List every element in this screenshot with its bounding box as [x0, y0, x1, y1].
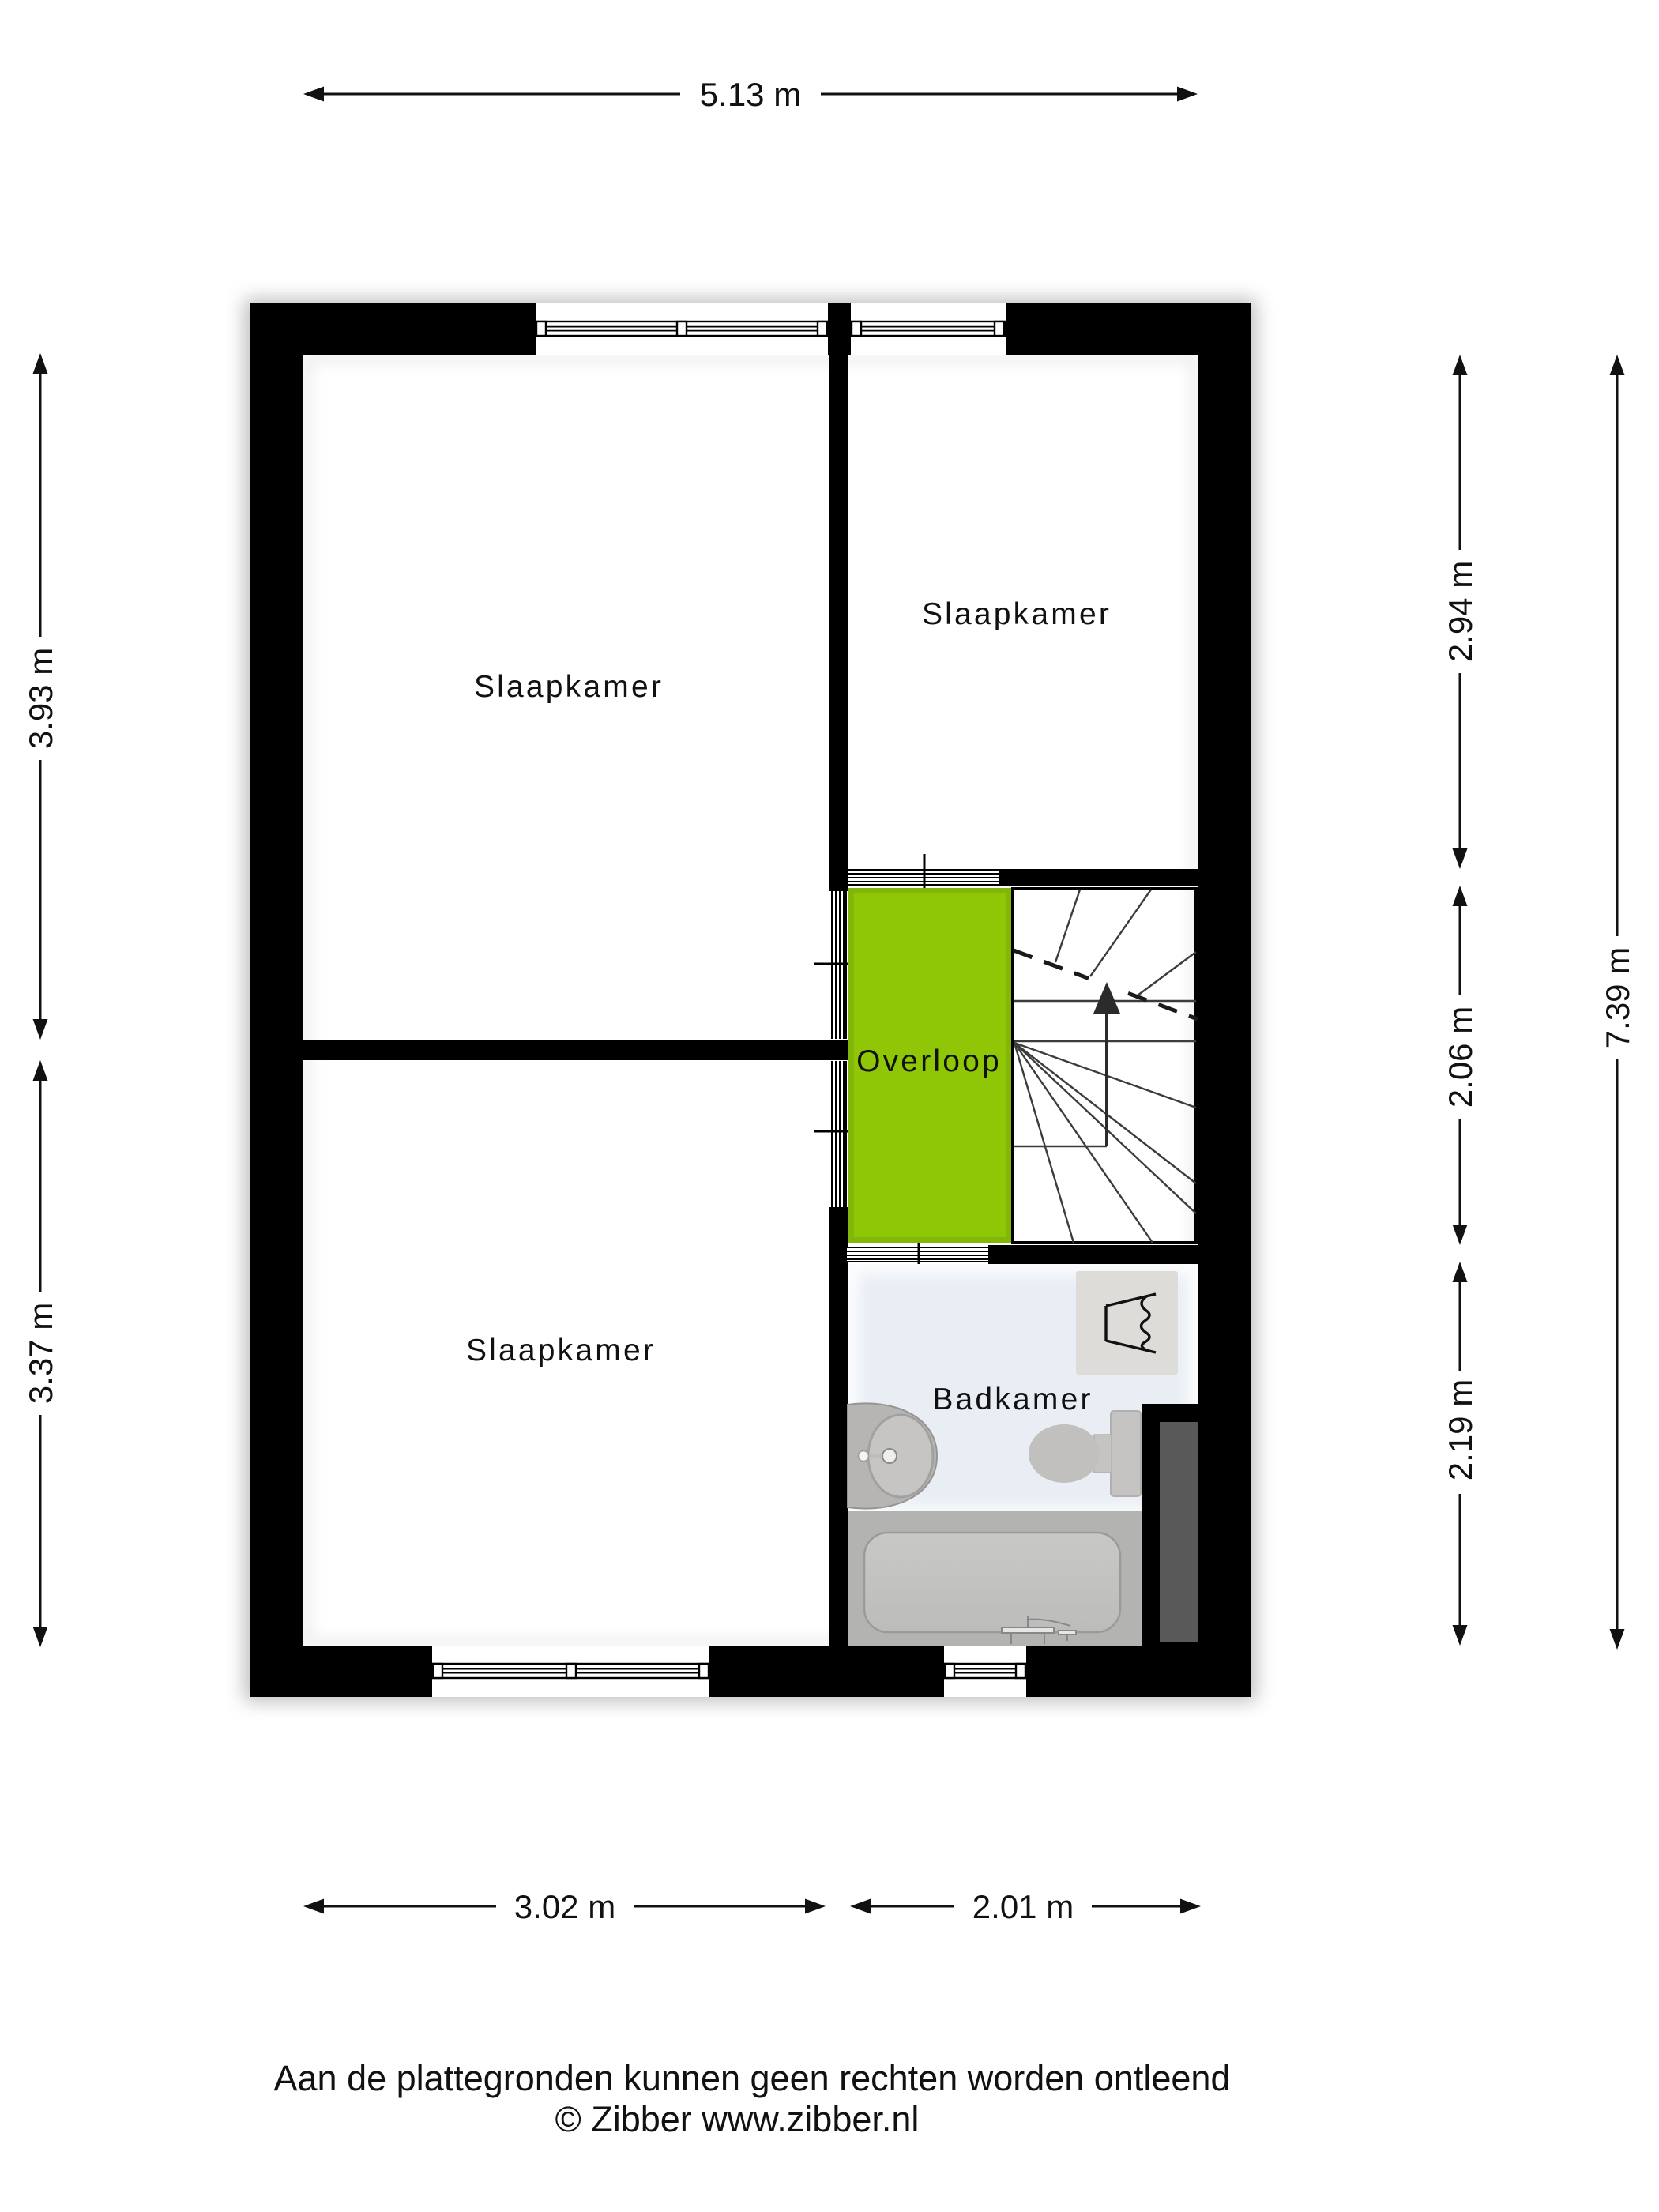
svg-text:5.13 m: 5.13 m	[700, 76, 801, 113]
svg-text:Badkamer: Badkamer	[932, 1382, 1093, 1416]
svg-text:3.93 m: 3.93 m	[22, 648, 59, 749]
svg-text:2.01 m: 2.01 m	[972, 1888, 1074, 1925]
svg-text:3.37 m: 3.37 m	[22, 1303, 59, 1404]
svg-text:2.94 m: 2.94 m	[1442, 561, 1479, 662]
svg-text:2.06 m: 2.06 m	[1442, 1006, 1479, 1108]
svg-text:Aan de plattegronden kunnen ge: Aan de plattegronden kunnen geen rechten…	[274, 2058, 1231, 2098]
svg-text:2.19 m: 2.19 m	[1442, 1379, 1479, 1480]
svg-text:© Zibber www.zibber.nl: © Zibber www.zibber.nl	[555, 2099, 920, 2139]
svg-text:Overloop: Overloop	[856, 1044, 1002, 1078]
svg-text:Slaapkamer: Slaapkamer	[474, 670, 664, 704]
svg-text:3.02 m: 3.02 m	[514, 1888, 615, 1925]
svg-text:7.39 m: 7.39 m	[1599, 947, 1636, 1048]
svg-text:Slaapkamer: Slaapkamer	[922, 597, 1112, 631]
svg-text:Slaapkamer: Slaapkamer	[466, 1334, 656, 1367]
